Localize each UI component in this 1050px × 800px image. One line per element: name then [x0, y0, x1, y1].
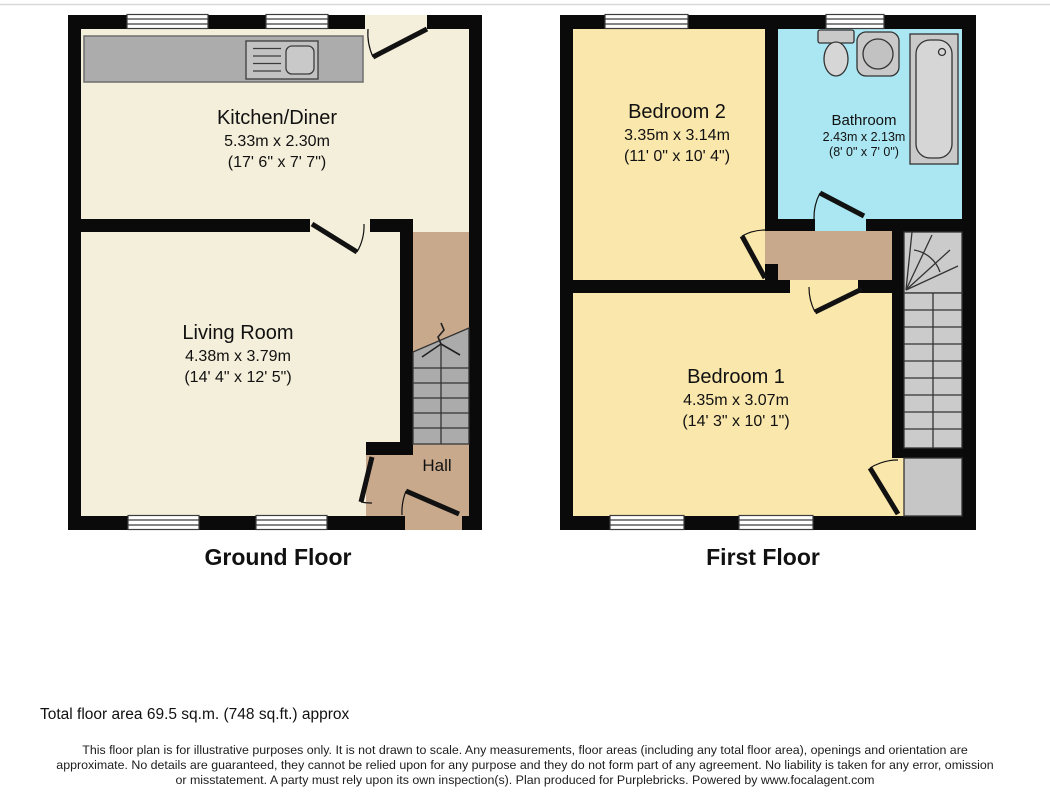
room-name: Bathroom — [789, 112, 939, 130]
hall-label: Hall — [402, 456, 472, 476]
first-staircase — [904, 232, 962, 448]
first-floor-plan — [560, 15, 976, 531]
disclaimer-line: or misstatement. A party must rely upon … — [45, 773, 1005, 788]
room-dim-metric: 5.33m x 2.30m — [157, 131, 397, 152]
room-dim-imperial: (17' 6" x 7' 7") — [157, 152, 397, 173]
room-dim-imperial: (14' 3" x 10' 1") — [616, 411, 856, 432]
kitchen-entry-gap — [365, 15, 427, 29]
kitchen-diner-label: Kitchen/Diner 5.33m x 2.30m (17' 6" x 7'… — [157, 106, 397, 173]
stairs-cupboard — [904, 458, 962, 516]
bedroom1-door-gap — [790, 280, 858, 293]
room-dim-metric: 4.38m x 3.79m — [118, 346, 358, 367]
room-dim-metric: 3.35m x 3.14m — [557, 125, 797, 146]
floorplan-page: Kitchen/Diner 5.33m x 2.30m (17' 6" x 7'… — [0, 0, 1050, 800]
ground-floor-title: Ground Floor — [128, 544, 428, 571]
disclaimer-line: approximate. No details are guaranteed, … — [45, 758, 1005, 773]
room-name: Bedroom 2 — [557, 100, 797, 125]
ground-floor-plan — [68, 15, 482, 531]
window — [610, 516, 684, 530]
room-name: Bedroom 1 — [616, 365, 856, 390]
window — [127, 15, 208, 29]
disclaimer-text: This floor plan is for illustrative purp… — [45, 743, 1005, 789]
basin-icon — [857, 32, 899, 76]
room-dim-metric: 2.43m x 2.13m — [789, 130, 939, 145]
landing-floor — [765, 231, 892, 280]
bedroom-1-label: Bedroom 1 4.35m x 3.07m (14' 3" x 10' 1"… — [616, 365, 856, 432]
disclaimer-line: This floor plan is for illustrative purp… — [45, 743, 1005, 758]
bathroom-door-gap — [815, 219, 866, 232]
kitchen-counter — [84, 36, 363, 82]
window — [826, 15, 884, 29]
kitchen-sink-icon — [246, 41, 318, 79]
room-dim-imperial: (11' 0" x 10' 4") — [557, 146, 797, 167]
room-name: Living Room — [118, 321, 358, 346]
living-room-label: Living Room 4.38m x 3.79m (14' 4" x 12' … — [118, 321, 358, 388]
bedroom-2-label: Bedroom 2 3.35m x 3.14m (11' 0" x 10' 4"… — [557, 100, 797, 167]
window — [266, 15, 328, 29]
total-floor-area: Total floor area 69.5 sq.m. (748 sq.ft.)… — [40, 706, 349, 724]
room-name: Kitchen/Diner — [157, 106, 397, 131]
room-dim-imperial: (14' 4" x 12' 5") — [118, 367, 358, 388]
room-dim-metric: 4.35m x 3.07m — [616, 390, 856, 411]
bathroom-label: Bathroom 2.43m x 2.13m (8' 0" x 7' 0") — [789, 112, 939, 160]
window — [739, 516, 813, 530]
window — [605, 15, 688, 29]
window — [256, 516, 327, 530]
first-floor-title: First Floor — [613, 544, 913, 571]
window — [128, 516, 199, 530]
room-dim-imperial: (8' 0" x 7' 0") — [789, 145, 939, 160]
